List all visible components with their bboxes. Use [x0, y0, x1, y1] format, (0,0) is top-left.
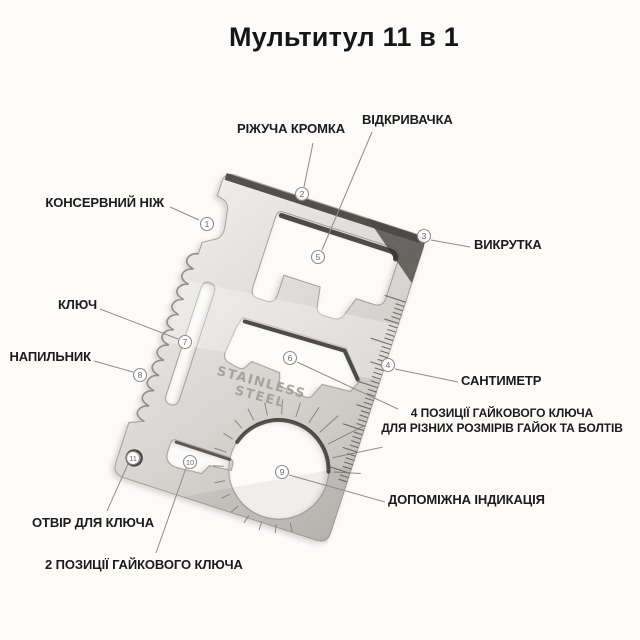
callout-bottle-opener: 5 — [312, 251, 325, 264]
callout-number-wrench-2-positions: 10 — [186, 458, 194, 467]
callout-number-auxiliary-indication: 9 — [280, 467, 285, 477]
leader-line-cutting-edge — [304, 143, 313, 187]
callout-number-wrench-key: 7 — [183, 337, 188, 347]
callout-number-can-opener-knife: 1 — [205, 219, 210, 229]
callout-number-key-hole: 11 — [129, 454, 137, 463]
callout-wrench-4-positions: 6 — [284, 352, 297, 365]
leader-line-wrench-key — [100, 309, 178, 339]
leader-line-file — [94, 361, 133, 372]
callout-number-bottle-opener: 5 — [316, 252, 321, 262]
leader-line-can-opener-knife — [170, 207, 199, 220]
callout-number-file: 8 — [138, 370, 143, 380]
callout-cutting-edge: 2 — [296, 188, 309, 201]
indicator-ray — [259, 521, 262, 530]
multitool-diagram: STAINLESS STEEL 1234567891011 — [0, 0, 640, 640]
callout-wrench-key: 7 — [179, 336, 192, 349]
leader-line-centimeter-ruler — [395, 369, 458, 382]
callout-number-screwdriver: 3 — [422, 231, 427, 241]
callout-file: 8 — [134, 369, 147, 382]
callout-key-hole: 11 — [127, 452, 140, 465]
callout-can-opener-knife: 1 — [201, 218, 214, 231]
callout-centimeter-ruler: 4 — [382, 359, 395, 372]
callout-number-cutting-edge: 2 — [300, 189, 305, 199]
callout-number-wrench-4-positions: 6 — [288, 353, 293, 363]
callout-wrench-2-positions: 10 — [184, 456, 197, 469]
diagram-stage: Мультитул 11 в 1 — [0, 0, 640, 640]
leader-line-screwdriver — [431, 240, 470, 247]
multitool-card: STAINLESS STEEL — [110, 168, 449, 559]
callout-screwdriver: 3 — [418, 230, 431, 243]
callout-auxiliary-indication: 9 — [276, 466, 289, 479]
callout-number-centimeter-ruler: 4 — [386, 360, 391, 370]
